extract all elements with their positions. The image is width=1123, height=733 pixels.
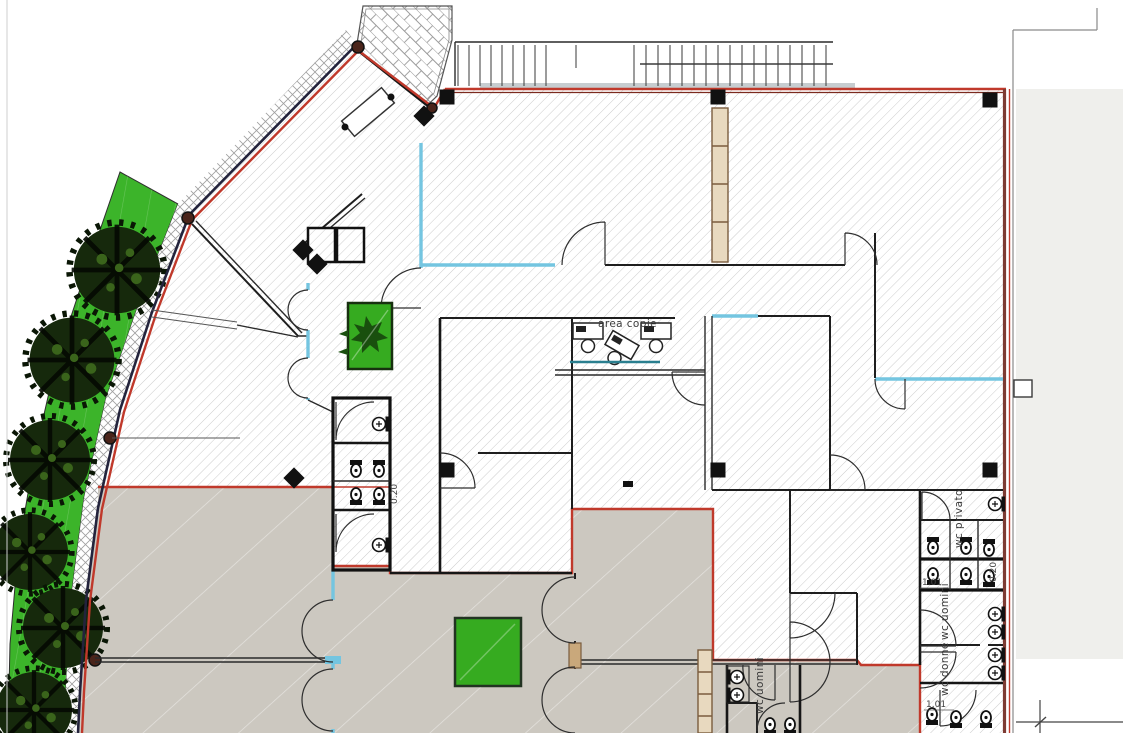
toilet (373, 460, 385, 477)
label-wc-uomini-bottom: wc uomini (754, 657, 766, 714)
toilet (983, 539, 995, 556)
label-wc-donne: wc donne (939, 642, 951, 696)
label-area-copie: area copie (598, 318, 657, 330)
timber-jamb (569, 643, 581, 668)
exterior-right-ground (1016, 89, 1123, 659)
toilet (980, 711, 992, 728)
sink (989, 666, 1006, 681)
toilet (960, 568, 972, 585)
sink (989, 625, 1006, 640)
sink (727, 670, 744, 685)
dim-101-right: 1.01 (922, 578, 942, 588)
sink (989, 648, 1006, 663)
toilet (350, 488, 362, 505)
store-room (308, 228, 335, 262)
toilet (784, 718, 796, 733)
toilet (927, 537, 939, 554)
door-leaf (325, 656, 341, 664)
floor-plan-page: area copie wc privato wc uomini wc donne… (0, 0, 1123, 733)
sink (727, 688, 744, 703)
sink (989, 607, 1006, 622)
dim-020-mid: 0.20 (390, 484, 400, 504)
toilet (350, 460, 362, 477)
toilet (373, 488, 385, 505)
planter-square (455, 618, 521, 686)
dim-020-right: 0.20 (989, 562, 999, 582)
sink (373, 417, 390, 432)
dim-101-bottom: 1.01 (926, 700, 946, 710)
toilet (764, 718, 776, 733)
store-room (337, 228, 364, 262)
sink (989, 497, 1006, 512)
label-wc-uomini-right: wc uomini (939, 583, 951, 640)
label-wc-privato: wc privato (953, 489, 965, 548)
sink (373, 538, 390, 553)
floor-plan-canvas: area copie wc privato wc uomini wc donne… (0, 0, 1123, 733)
meter-box (1014, 380, 1032, 397)
toilet (950, 711, 962, 728)
tree (0, 510, 72, 594)
toilet (926, 708, 938, 725)
